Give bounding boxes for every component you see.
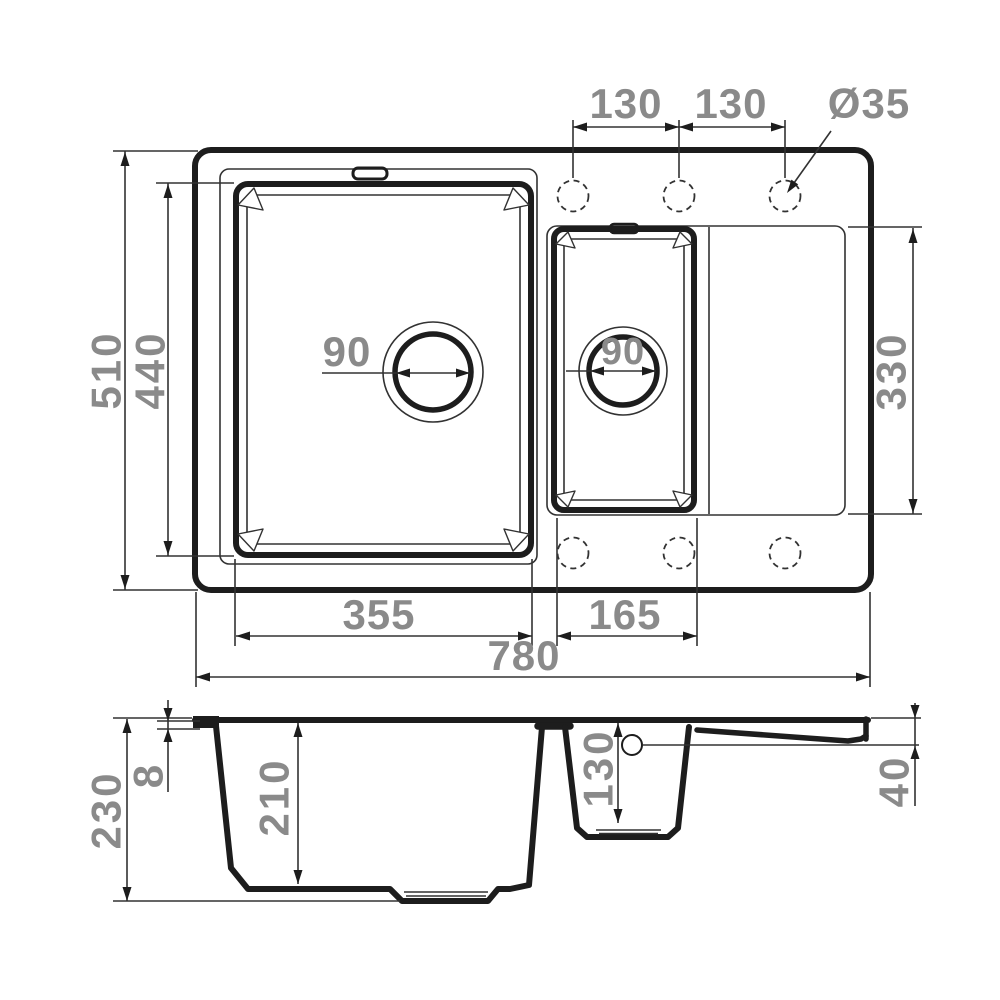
- dim-small-bowl-width: 165: [557, 518, 697, 646]
- dim-small-bowl-section-depth: 130: [575, 723, 623, 823]
- dim-main-bowl-section-depth: 210: [251, 723, 303, 884]
- dim-total-height: 230: [83, 718, 400, 901]
- main-bowl-rim: [220, 169, 537, 564]
- main-drain-diameter-label: 90: [323, 328, 372, 375]
- tap-hole-diameter-label: Ø35: [828, 80, 910, 127]
- dim-tap-spacing: 130 130: [573, 80, 785, 178]
- main-bowl-section-depth-label: 210: [251, 757, 298, 836]
- technical-drawing-page: 90 90: [0, 0, 1000, 1000]
- overall-width-label: 780: [487, 632, 560, 679]
- small-drain: 90: [566, 327, 667, 415]
- tap-hole-circle: [770, 538, 801, 569]
- small-bowl-section-depth-label: 130: [575, 728, 622, 807]
- tap-hole-circle: [558, 181, 589, 212]
- dim-main-bowl-depth: 440: [127, 183, 234, 556]
- tap-hole-circle: [664, 538, 695, 569]
- section-view-dimensions: 230 8 210 130: [83, 700, 921, 901]
- small-drain-diameter-label: 90: [601, 331, 645, 373]
- overflow-hole: [622, 735, 642, 755]
- main-drain: 90: [322, 322, 483, 422]
- sink-drawing: 90 90: [0, 0, 1000, 1000]
- dim-rim-thickness: 8: [125, 700, 200, 792]
- main-drain-outer-circle: [383, 322, 483, 422]
- total-height-label: 230: [83, 770, 130, 849]
- dim-overall-width: 780: [196, 592, 870, 687]
- top-view: 90 90: [195, 150, 871, 590]
- top-view-dimensions: 130 130 Ø35 510 440: [83, 80, 922, 687]
- overall-depth-label: 510: [83, 330, 130, 409]
- drainboard-drop-label: 40: [871, 755, 918, 808]
- small-bowl-width-label: 165: [588, 591, 661, 638]
- dim-tap-hole-diameter: Ø35: [787, 80, 910, 193]
- tap-hole-circle: [558, 538, 589, 569]
- tap-spacing-left-label: 130: [589, 80, 662, 127]
- drainboard-length-label: 330: [868, 331, 915, 410]
- dim-drainboard-length: 330: [848, 227, 922, 514]
- rim-thickness-label: 8: [125, 762, 172, 788]
- tap-hole-circle: [664, 181, 695, 212]
- main-bowl-width-label: 355: [342, 591, 415, 638]
- section-drainboard-surface: [697, 730, 866, 741]
- main-bowl-depth-label: 440: [127, 330, 174, 409]
- tap-spacing-right-label: 130: [694, 80, 767, 127]
